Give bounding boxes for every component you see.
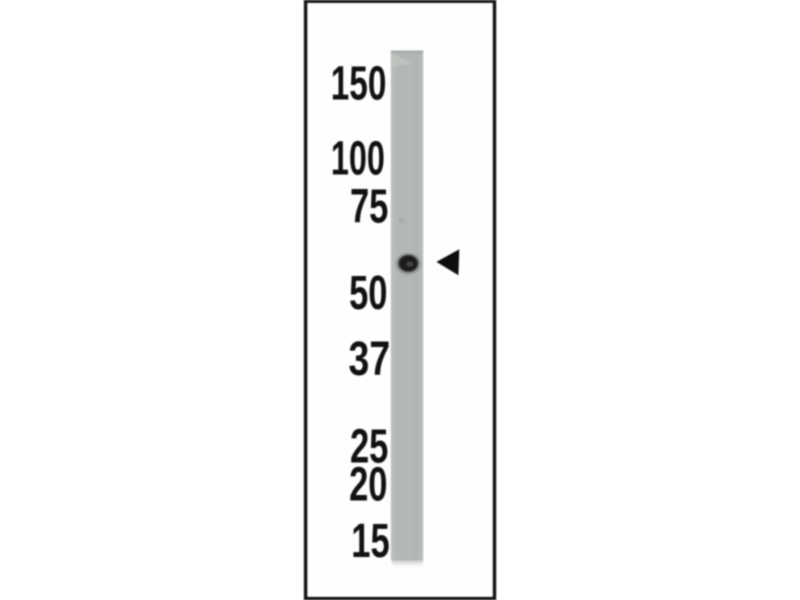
svg-text:20: 20	[349, 457, 387, 511]
svg-text:150: 150	[331, 57, 387, 110]
svg-text:15: 15	[351, 514, 389, 568]
svg-text:75: 75	[350, 179, 388, 233]
svg-text:37: 37	[349, 333, 391, 387]
svg-text:100: 100	[331, 131, 385, 185]
svg-text:50: 50	[349, 266, 387, 320]
